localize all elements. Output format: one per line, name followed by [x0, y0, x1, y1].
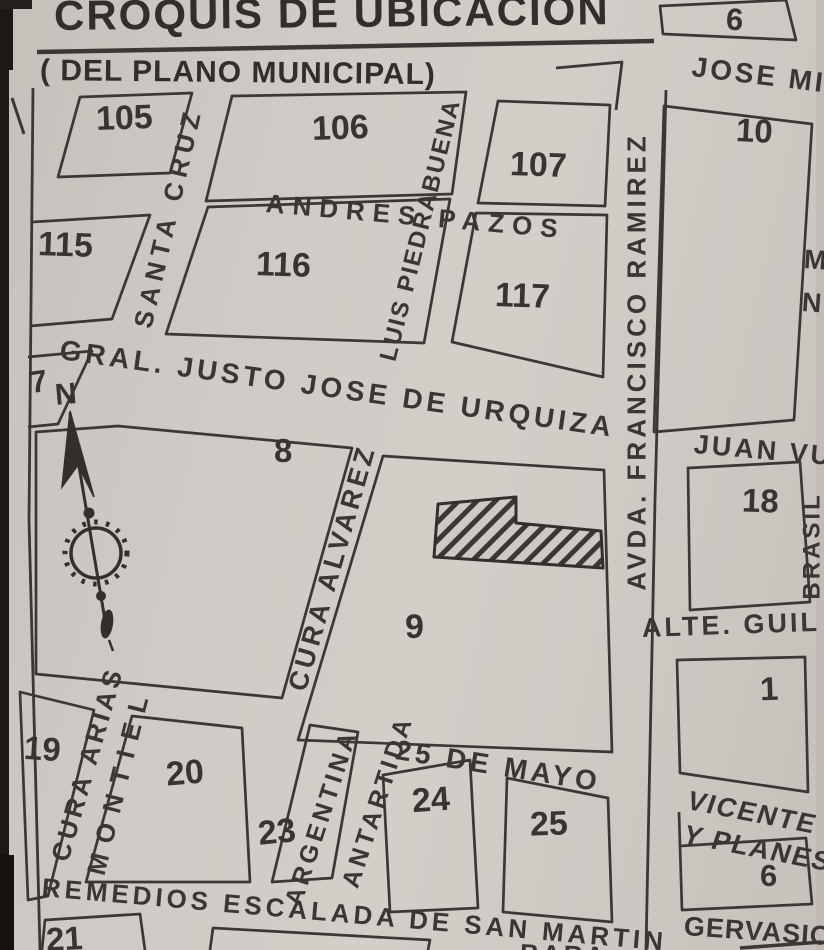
street-label-brasil: BRASIL — [799, 492, 824, 599]
scanned-map-page: CROQUIS DE UBICACIÓN ( DEL PLANO MUNICIP… — [0, 0, 824, 950]
street-label-alte-guil: ALTE. GUIL — [642, 608, 821, 643]
block-r6-top-label: 6 — [725, 2, 744, 39]
block-9-label: 9 — [405, 608, 424, 647]
block-8-label: 8 — [274, 432, 292, 470]
block-r1-label: 1 — [759, 670, 779, 709]
hatched-building — [434, 497, 603, 568]
block-20-label: 20 — [164, 752, 205, 794]
title-underline — [37, 41, 654, 52]
block-115-label: 115 — [37, 225, 93, 266]
block-19-label: 19 — [23, 729, 62, 769]
compass-north-label: N — [54, 377, 79, 413]
block-r18-label: 18 — [741, 481, 779, 520]
block-117-label: 117 — [494, 276, 550, 317]
block-r10-label: 10 — [735, 111, 774, 151]
block-106-label: 106 — [311, 108, 369, 149]
block-23-label: 23 — [256, 811, 298, 854]
bottom-partial-text: BARA — [520, 940, 608, 950]
block-21-label: 21 — [45, 919, 84, 950]
block-25-label: 25 — [529, 804, 568, 844]
edge-partial-n: N — [801, 288, 822, 318]
page-subtitle: ( DEL PLANO MUNICIPAL) — [40, 55, 436, 91]
block-24-label: 24 — [411, 780, 451, 822]
page-title: CROQUIS DE UBICACIÓN — [54, 0, 610, 38]
block-105-label: 105 — [95, 98, 153, 139]
block-107-label: 107 — [509, 145, 567, 186]
compass-icon — [62, 411, 127, 651]
block-116-label: 116 — [255, 245, 311, 286]
street-label-avda-francisco-ramirez: AVDA. FRANCISCO RAMIREZ — [623, 132, 650, 590]
edge-partial-m: M — [803, 245, 824, 275]
